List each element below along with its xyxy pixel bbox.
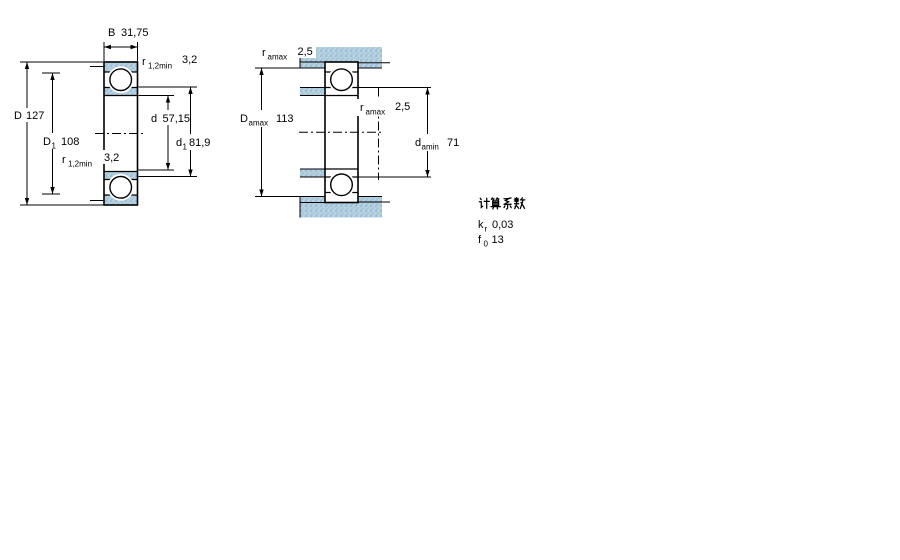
- dim-ra-mid-value: 2,5: [395, 101, 410, 113]
- dim-D-value: 127: [26, 110, 44, 122]
- dim-ra-top-symbol: r: [262, 47, 266, 59]
- ball-bottom-right: [331, 174, 353, 196]
- dim-r-bottom-value: 3,2: [104, 152, 119, 164]
- dim-d-value: 57,15: [163, 113, 191, 125]
- dim-r-top-value: 3,2: [182, 54, 197, 66]
- dim-d1-value: 81,9: [189, 137, 210, 149]
- dim-da-value: 71: [447, 137, 459, 149]
- dim-ra-mid-symbol: r: [360, 102, 364, 114]
- dim-d1-symbol: d: [176, 137, 182, 149]
- factor-kr-value: 0,03: [492, 219, 513, 231]
- dim-D1-subscript: 1: [52, 142, 57, 151]
- dim-ra-top-subscript: amax: [268, 53, 288, 62]
- dim-ra-mid-subscript: amax: [366, 108, 386, 117]
- left-figure-bearing-section: [95, 62, 146, 205]
- dim-da-symbol: d: [415, 137, 421, 149]
- dim-r-top-subscript: 1,2min: [148, 62, 172, 71]
- dim-da-subscript: amin: [422, 143, 439, 152]
- factor-kr-symbol: k: [478, 219, 484, 231]
- housing-shoulder-bottom-right: [358, 197, 382, 202]
- factor-f0-subscript: 0: [484, 240, 489, 249]
- dim-d-symbol: d: [151, 113, 157, 125]
- shaft-shoulder-bottom: [300, 169, 325, 177]
- dim-ra-top-value: 2,5: [298, 46, 313, 58]
- ball-top-right: [331, 69, 353, 91]
- factor-kr-subscript: r: [485, 225, 488, 234]
- ball-bottom: [110, 177, 132, 199]
- dim-r-top-symbol: r: [142, 56, 146, 68]
- dim-r-bottom-symbol: r: [62, 154, 66, 166]
- dim-Da-subscript: amax: [249, 119, 269, 128]
- bearing-drawing-page: 计算系数: [0, 0, 900, 560]
- calc-factors-heading-glyphs: [479, 198, 524, 209]
- ball-top: [110, 69, 132, 91]
- dim-D1-symbol: D: [43, 136, 51, 148]
- calculation-factors-block: k r 0,03 f 0 13: [478, 198, 525, 249]
- factor-f0-symbol: f: [478, 234, 482, 246]
- dim-D1-value: 108: [61, 136, 79, 148]
- dim-r-bottom-subscript: 1,2min: [68, 160, 92, 169]
- factor-f0-value: 13: [492, 234, 504, 246]
- housing-shoulder-bottom-left: [300, 197, 325, 203]
- dim-B-symbol: B: [108, 27, 115, 39]
- dim-B-value: 31,75: [121, 27, 149, 39]
- dim-Da-symbol: D: [240, 113, 248, 125]
- housing-bottom: [300, 203, 382, 218]
- housing-shoulder-top-left: [300, 62, 325, 68]
- dim-Da-value: 113: [276, 113, 294, 125]
- bearing-drawing: B 31,75 r 1,2min 3,2 D 127 D 1 108 d 57,…: [0, 0, 900, 560]
- shaft-shoulder-top: [300, 88, 325, 96]
- housing-shoulder-top-right: [358, 63, 382, 68]
- right-figure-mounting-section: [299, 47, 390, 218]
- dim-D-symbol: D: [14, 110, 22, 122]
- dim-d1-subscript: 1: [183, 143, 188, 152]
